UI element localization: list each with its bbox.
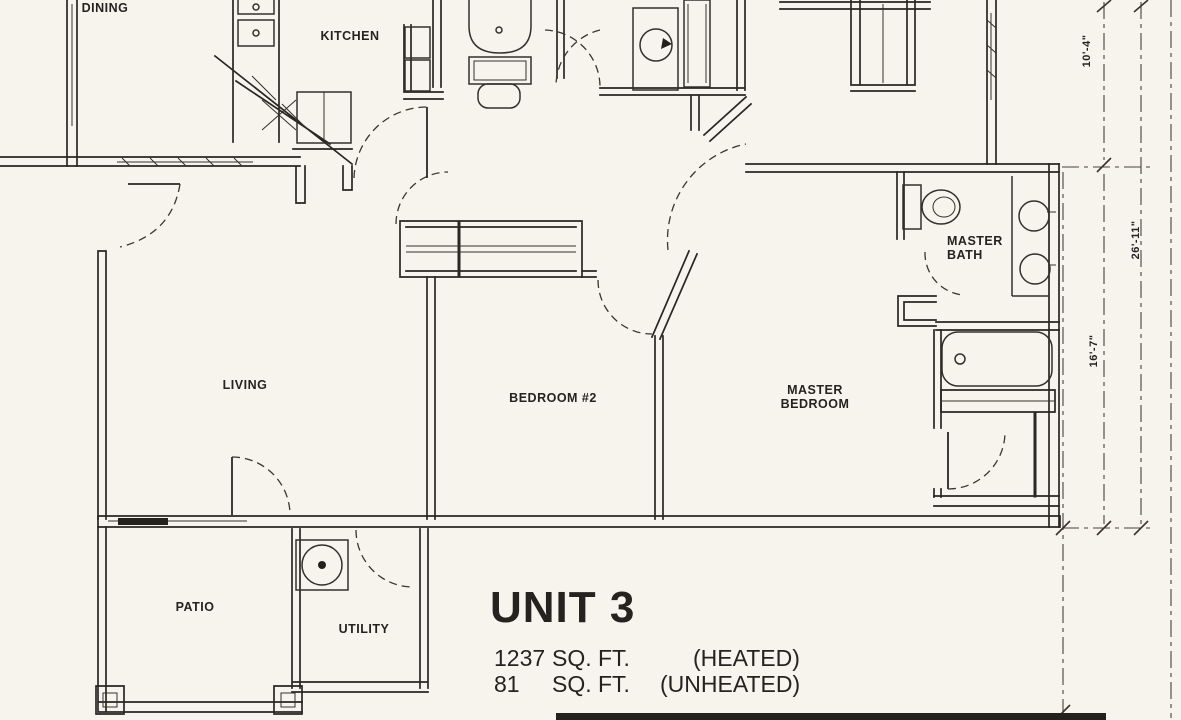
kitchen-counter bbox=[215, 0, 352, 164]
room-label-master-bath-1: MASTER bbox=[947, 234, 1003, 248]
scanned-floor-plan-page: 10'-4" 26'-11" 16'-7" DINING KITCHEN LIV… bbox=[0, 0, 1181, 720]
master-entry-angled-wall bbox=[704, 97, 751, 141]
tub-room-top-wall bbox=[936, 322, 1059, 330]
doors bbox=[120, 30, 1005, 587]
dim-label-top-right: 10'-4" bbox=[1081, 35, 1093, 68]
laundry-door-swing bbox=[556, 30, 600, 85]
entry-door-swing bbox=[120, 184, 180, 247]
master-tub bbox=[942, 332, 1052, 386]
room-label-bedroom2: BEDROOM #2 bbox=[509, 391, 597, 405]
patio-door-swing bbox=[232, 457, 290, 515]
dimension-lines: 10'-4" 26'-11" 16'-7" bbox=[1056, 0, 1171, 719]
bedroom2-door-swing bbox=[598, 280, 652, 334]
exterior-walls bbox=[0, 0, 1060, 527]
sink-drain-2-icon bbox=[253, 30, 259, 36]
top-left-wall bbox=[0, 157, 305, 203]
master-bath-top-wall bbox=[746, 164, 1059, 172]
hall-closet-door-swing bbox=[396, 172, 448, 224]
master-tub-faucet-icon bbox=[955, 354, 965, 364]
heated-note: (HEATED) bbox=[693, 645, 800, 671]
room-label-master-bedroom-1: MASTER bbox=[787, 383, 843, 397]
title-block: UNIT 3 1237 SQ. FT. (HEATED) 81 SQ. FT. … bbox=[490, 583, 800, 697]
tub-drain-icon bbox=[496, 27, 502, 33]
unheated-note: (UNHEATED) bbox=[660, 671, 800, 697]
toilet-bowl bbox=[922, 190, 960, 224]
utility-door-swing bbox=[356, 530, 413, 587]
hall-door-swing bbox=[354, 107, 427, 178]
hall-linen-shelves bbox=[405, 27, 430, 91]
dim-label-overall: 26'-11" bbox=[1130, 221, 1142, 260]
patio-post-insets bbox=[103, 693, 295, 707]
toilet-tank bbox=[903, 185, 921, 229]
hall-closet-block bbox=[400, 221, 582, 277]
unheated-value: 81 bbox=[494, 671, 520, 697]
floor-plan-drawing: 10'-4" 26'-11" 16'-7" DINING KITCHEN LIV… bbox=[0, 0, 1181, 720]
right-wall bbox=[1049, 164, 1059, 527]
room-label-dining: DINING bbox=[82, 1, 129, 15]
water-heater-valve-icon bbox=[318, 561, 326, 569]
dim-label-lower: 16'-7" bbox=[1088, 335, 1100, 368]
closet-bottom-wall bbox=[934, 496, 1059, 506]
sink-drain-1-icon bbox=[253, 4, 259, 10]
dryer-insets bbox=[688, 4, 706, 83]
room-label-master-bedroom-2: BEDROOM bbox=[781, 397, 850, 411]
kitchen-fixtures bbox=[215, 0, 352, 164]
laundry-fixtures bbox=[633, 0, 710, 90]
room-label-utility: UTILITY bbox=[339, 622, 390, 636]
patio-slider-panel bbox=[118, 518, 168, 525]
heated-value: 1237 bbox=[494, 645, 545, 671]
dimension-ticks bbox=[1056, 0, 1148, 719]
walkin-closet-door-swing bbox=[948, 432, 1005, 489]
patio-posts bbox=[96, 686, 302, 714]
room-labels: DINING KITCHEN LIVING BEDROOM #2 MASTER … bbox=[82, 1, 1003, 636]
toilet-bowl-inner bbox=[933, 197, 955, 217]
kitchen-sink bbox=[238, 0, 274, 46]
unit-title: UNIT 3 bbox=[490, 583, 635, 632]
room-label-kitchen: KITCHEN bbox=[320, 29, 379, 43]
unheated-unit: SQ. FT. bbox=[552, 671, 630, 697]
master-bedroom-door-swing bbox=[667, 144, 746, 250]
bedroom2-master-wall bbox=[652, 251, 697, 519]
master-bath-fixtures bbox=[903, 176, 1056, 386]
shower-walls bbox=[898, 296, 936, 326]
hall-bath-vanity-inset bbox=[474, 61, 526, 80]
vanity-counter bbox=[1012, 176, 1049, 296]
top-right-window bbox=[987, 13, 996, 100]
scan-artifact-bar bbox=[556, 713, 1106, 720]
heated-unit: SQ. FT. bbox=[552, 645, 630, 671]
room-label-patio: PATIO bbox=[176, 600, 215, 614]
living-left-wall bbox=[98, 251, 106, 519]
closet-shelf-lines bbox=[406, 246, 576, 252]
hall-door-jamb bbox=[343, 166, 352, 190]
room-label-master-bath-2: BATH bbox=[947, 248, 983, 262]
utility-fixtures bbox=[296, 540, 348, 590]
vanity-sink-1 bbox=[1019, 201, 1049, 231]
bath-column-wall bbox=[934, 330, 941, 497]
hall-bath-door-swing bbox=[545, 30, 600, 86]
dining-window bbox=[117, 158, 253, 166]
windows bbox=[72, 4, 996, 525]
vanity-sink-2 bbox=[1020, 254, 1050, 284]
patio-walls bbox=[98, 527, 302, 712]
hall-bath-toilet bbox=[478, 84, 520, 108]
room-label-living: LIVING bbox=[223, 378, 268, 392]
utility-walls bbox=[292, 529, 428, 692]
laundry-walls bbox=[600, 0, 745, 130]
